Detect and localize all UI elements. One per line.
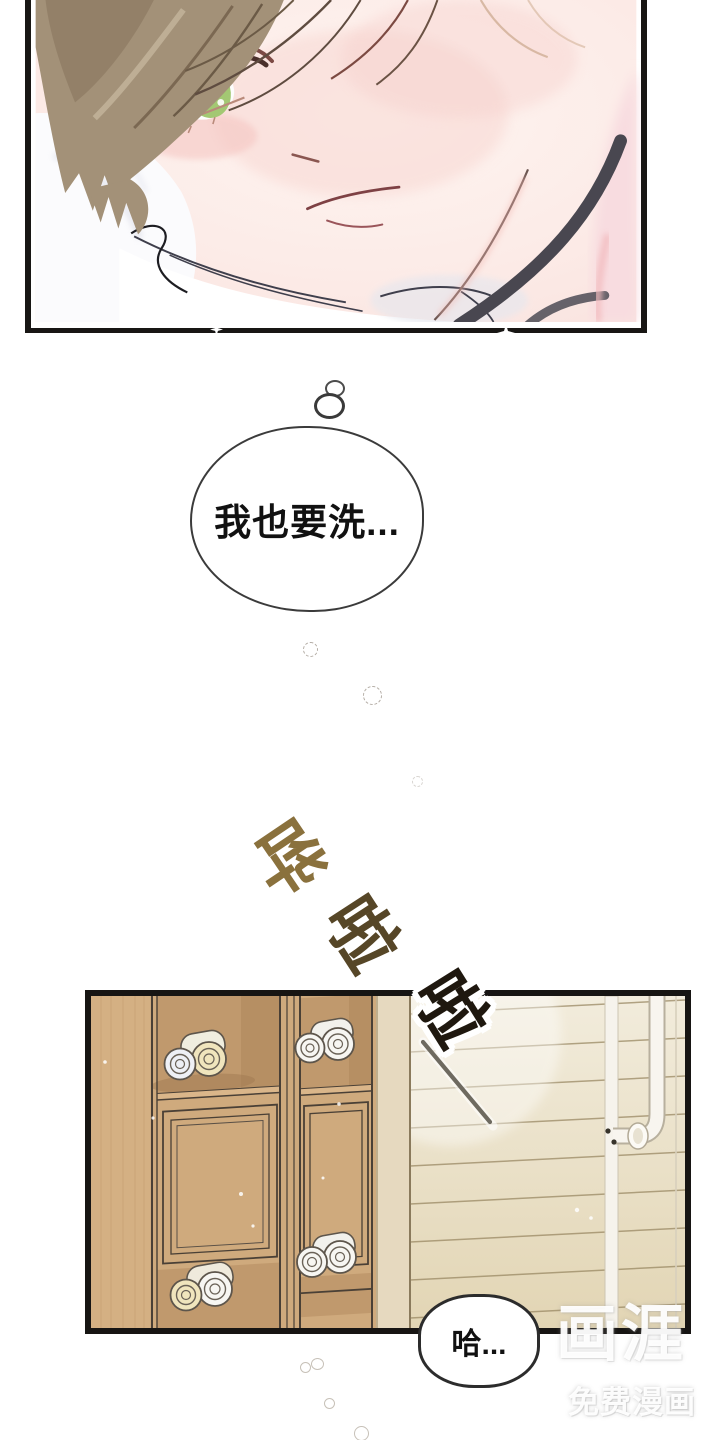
speech-bubble-thought: 我也要洗... [190,426,424,612]
sfx-char-2: 啦 [313,886,410,983]
soap-bubble-icon [300,1362,311,1373]
locker-cabinet [91,996,410,1328]
sparkle-ring-icon [363,686,382,705]
soap-bubble-icon [324,1398,335,1409]
faucet-hook [605,1128,610,1133]
watermark-tagline: 免费漫画 [556,1377,720,1422]
speech-bubble-gasp: 哈... [418,1294,540,1388]
soap-bubble-icon [311,1358,324,1370]
watermark-logo: 画涯 [556,1302,720,1367]
sparkle-ring-icon [303,642,318,657]
watermark-huaya: 画涯 免费漫画 [556,1302,720,1422]
sparkle-ring-icon [412,776,423,787]
soap-bubble-icon [354,1426,369,1440]
webtoon-page: 我也要洗... 哗 啦 啦 [0,0,720,1440]
closeup-artwork [31,0,641,322]
bathhouse-artwork [91,996,685,1328]
thought-trail-bubble-large [314,393,345,419]
panel-bedroom-closeup [25,0,647,333]
sfx-char-1: 哗 [238,809,335,906]
panel-bathhouse-lockers [85,990,691,1334]
gasp-text: 哈... [451,1319,506,1363]
thought-text: 我也要洗... [214,492,400,546]
